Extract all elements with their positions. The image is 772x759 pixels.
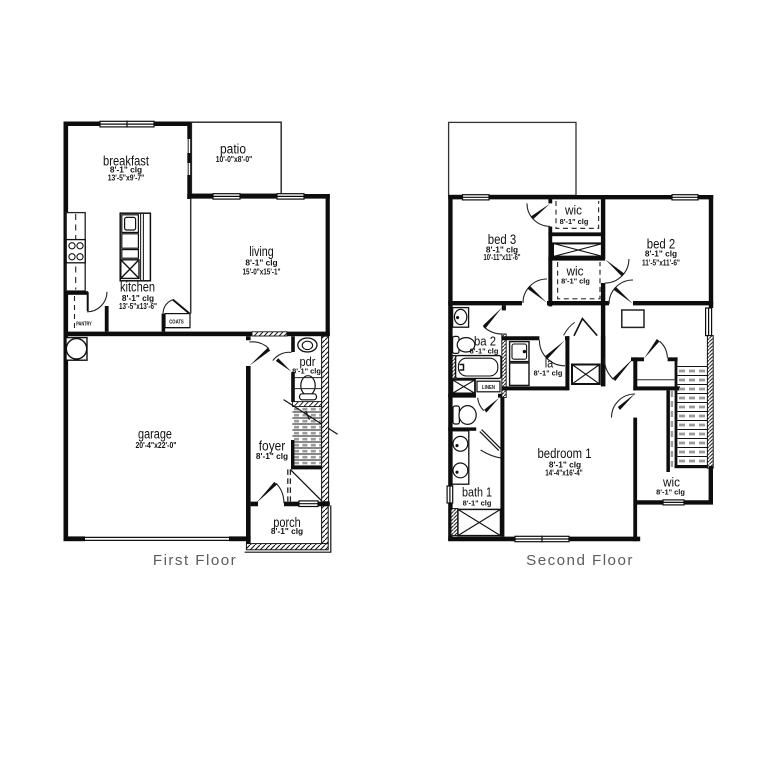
svg-text:PANTRY: PANTRY — [76, 322, 92, 328]
svg-text:11'-5"x11'-6": 11'-5"x11'-6" — [642, 258, 680, 268]
svg-text:8'-1" clg: 8'-1" clg — [463, 499, 492, 508]
svg-text:10'-11"x11'-6": 10'-11"x11'-6" — [484, 252, 521, 262]
svg-text:10'-0"x8'-0": 10'-0"x8'-0" — [216, 154, 253, 164]
svg-text:COATS: COATS — [169, 320, 184, 326]
svg-text:8'-1" clg: 8'-1" clg — [656, 488, 685, 497]
svg-text:wic: wic — [564, 203, 582, 217]
svg-text:First Floor: First Floor — [153, 552, 237, 569]
svg-text:14'-4"x16'-4": 14'-4"x16'-4" — [545, 467, 583, 477]
svg-text:8'-1" clg: 8'-1" clg — [271, 526, 303, 536]
svg-text:8'-1" clg: 8'-1" clg — [470, 347, 499, 356]
svg-text:8'-1" clg: 8'-1" clg — [561, 277, 590, 286]
svg-text:LINEN: LINEN — [482, 385, 495, 391]
svg-text:15'-0"x15'-1": 15'-0"x15'-1" — [243, 267, 281, 277]
svg-text:13'-5"x9'-7": 13'-5"x9'-7" — [108, 173, 145, 183]
svg-text:Second Floor: Second Floor — [526, 552, 634, 569]
svg-text:8'-1" clg: 8'-1" clg — [256, 451, 288, 461]
svg-text:8'-1" clg: 8'-1" clg — [560, 217, 589, 226]
svg-text:8'-1" clg: 8'-1" clg — [292, 367, 321, 376]
svg-text:8'-1" clg: 8'-1" clg — [534, 369, 563, 378]
svg-text:bath 1: bath 1 — [462, 486, 492, 500]
svg-text:13'-5"x13'-6": 13'-5"x13'-6" — [119, 301, 157, 311]
svg-text:20'-4"x22'-0": 20'-4"x22'-0" — [136, 440, 177, 450]
